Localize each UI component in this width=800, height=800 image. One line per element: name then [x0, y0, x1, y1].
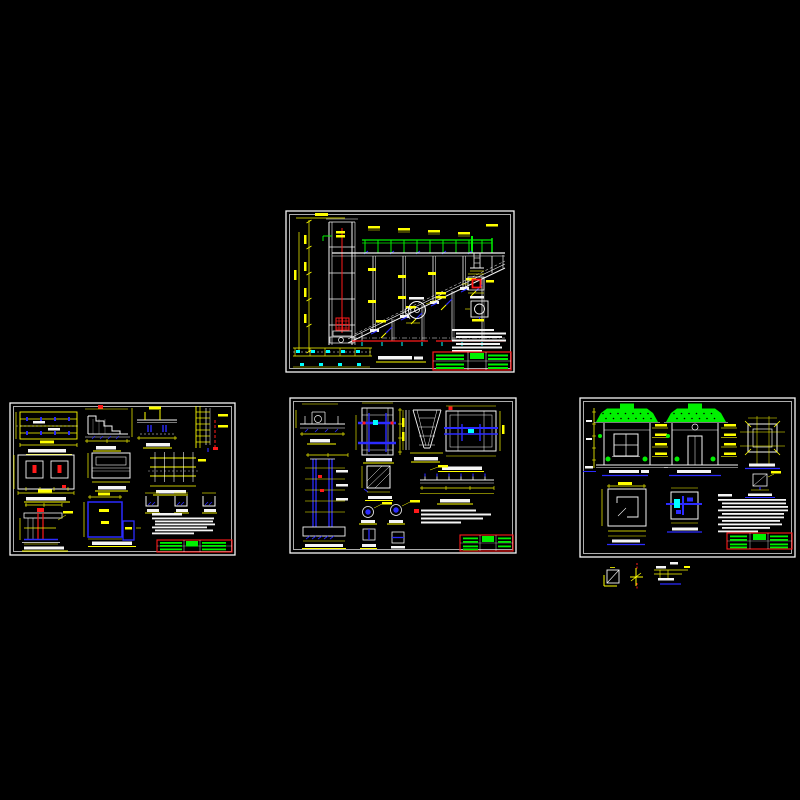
foundation-details-sheet[interactable]: [10, 403, 235, 555]
rebar-details-sheet[interactable]: [290, 398, 516, 553]
conveyor-section-sheet[interactable]: [286, 211, 514, 372]
loose-detail-fragments[interactable]: [604, 562, 690, 589]
pavilion-elevations-sheet[interactable]: [580, 398, 795, 557]
cad-drawing-svg: [0, 0, 800, 800]
cad-canvas[interactable]: [0, 0, 800, 800]
